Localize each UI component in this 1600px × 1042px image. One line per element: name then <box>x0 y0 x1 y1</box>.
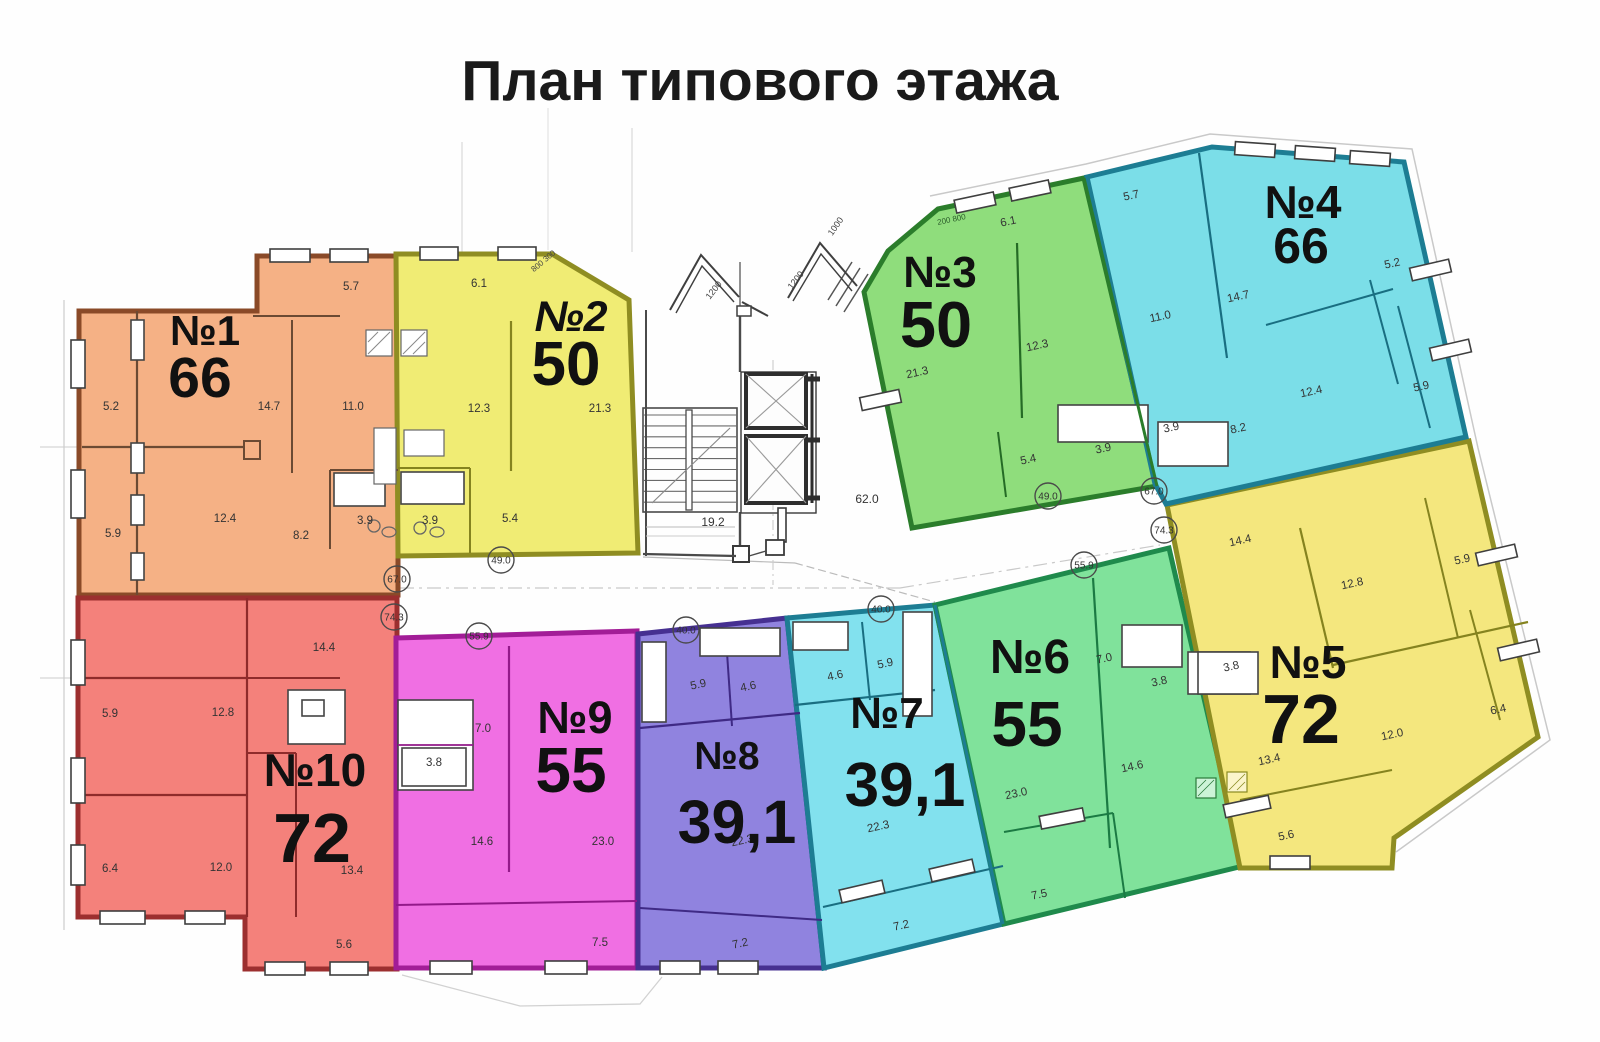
svg-text:8.2: 8.2 <box>293 530 309 542</box>
svg-text:11.0: 11.0 <box>342 401 364 413</box>
svg-text:21.3: 21.3 <box>589 403 611 415</box>
svg-text:5.2: 5.2 <box>103 401 119 413</box>
svg-text:72: 72 <box>1262 680 1340 758</box>
svg-text:5.9: 5.9 <box>105 528 121 540</box>
svg-text:№10: №10 <box>264 744 366 796</box>
svg-text:12.8: 12.8 <box>212 707 234 719</box>
svg-text:№8: №8 <box>694 735 759 778</box>
svg-text:3.8: 3.8 <box>426 757 442 769</box>
svg-text:План типового этажа: План типового этажа <box>461 49 1060 113</box>
svg-text:12.0: 12.0 <box>210 862 232 874</box>
svg-text:55: 55 <box>991 688 1062 760</box>
svg-text:12.3: 12.3 <box>468 403 490 415</box>
svg-text:5.7: 5.7 <box>343 281 359 293</box>
svg-text:66: 66 <box>168 346 231 410</box>
svg-text:67.0: 67.0 <box>1144 487 1164 498</box>
svg-text:74.3: 74.3 <box>384 613 404 624</box>
svg-text:12.4: 12.4 <box>214 513 237 525</box>
svg-text:3.9: 3.9 <box>357 515 373 527</box>
svg-text:6.4: 6.4 <box>102 863 119 875</box>
svg-text:55.9: 55.9 <box>469 632 489 643</box>
svg-text:49.0: 49.0 <box>1038 492 1058 503</box>
svg-text:55.9: 55.9 <box>1074 561 1094 572</box>
svg-text:7.5: 7.5 <box>592 937 608 949</box>
svg-text:74.3: 74.3 <box>1154 526 1174 537</box>
svg-text:14.4: 14.4 <box>313 642 336 654</box>
svg-text:40.0: 40.0 <box>676 626 696 637</box>
svg-text:5.9: 5.9 <box>102 708 118 720</box>
svg-text:14.6: 14.6 <box>471 836 493 848</box>
svg-text:39,1: 39,1 <box>678 788 797 856</box>
svg-text:66: 66 <box>1273 218 1329 274</box>
svg-text:50: 50 <box>532 330 601 399</box>
svg-text:19.2: 19.2 <box>701 515 725 529</box>
svg-text:72: 72 <box>273 799 351 877</box>
svg-text:14.7: 14.7 <box>258 401 280 413</box>
svg-text:№6: №6 <box>990 631 1070 684</box>
svg-text:62.0: 62.0 <box>855 492 879 506</box>
svg-text:5.4: 5.4 <box>502 513 519 525</box>
svg-text:№7: №7 <box>850 689 924 738</box>
svg-text:5.6: 5.6 <box>336 939 352 951</box>
svg-text:49.0: 49.0 <box>491 556 511 567</box>
svg-text:67.0: 67.0 <box>387 575 407 586</box>
svg-text:55: 55 <box>535 734 606 806</box>
svg-text:3.9: 3.9 <box>422 515 438 527</box>
svg-text:40.0: 40.0 <box>871 605 891 616</box>
svg-text:6.1: 6.1 <box>471 278 487 290</box>
svg-text:23.0: 23.0 <box>592 836 614 848</box>
svg-text:39,1: 39,1 <box>845 751 966 820</box>
svg-text:50: 50 <box>900 288 972 361</box>
svg-text:7.0: 7.0 <box>475 723 491 735</box>
